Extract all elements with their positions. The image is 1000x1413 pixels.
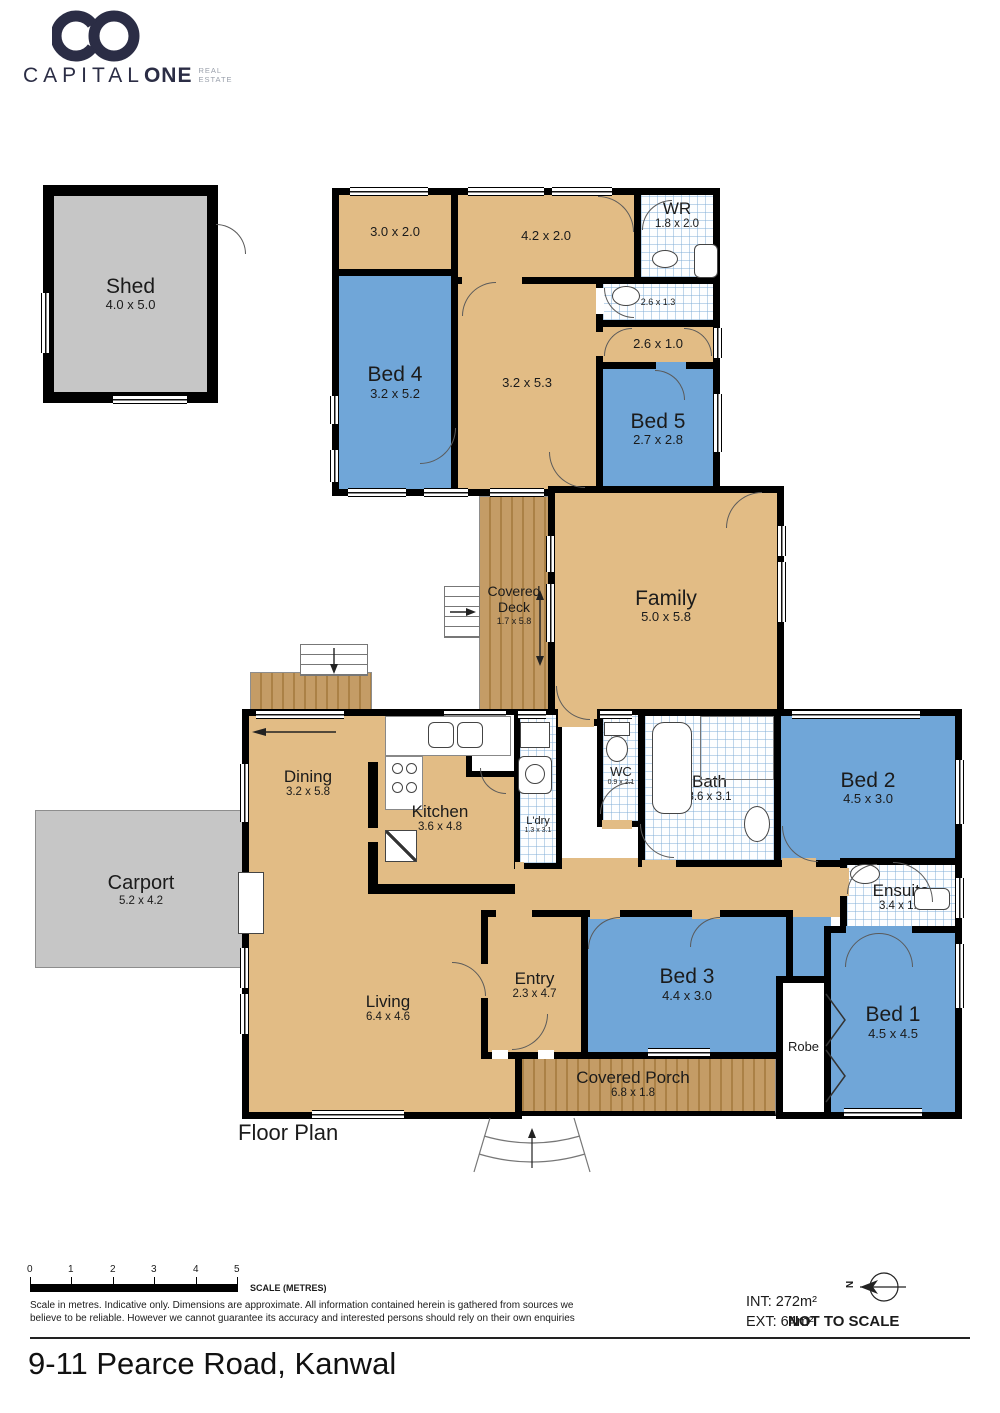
brand-name-one: ONE bbox=[144, 64, 193, 88]
floor-plan-page: CAPITAL ONE REAL ESTATE Shed 4.0 x 5.0 C… bbox=[0, 0, 1000, 1413]
window bbox=[844, 1108, 922, 1117]
wr-basin bbox=[652, 250, 678, 268]
floor-plan-caption: Floor Plan bbox=[238, 1120, 338, 1146]
window bbox=[468, 187, 544, 196]
room-label: Covered Porch bbox=[576, 1068, 689, 1087]
washing-machine-door bbox=[525, 764, 545, 784]
window bbox=[792, 710, 920, 719]
kitchen-sink bbox=[428, 722, 454, 748]
room-label: Bed 1 bbox=[866, 1003, 921, 1027]
page-title: 9-11 Pearce Road, Kanwal bbox=[28, 1346, 396, 1382]
room-carport: Carport 5.2 x 4.2 bbox=[35, 810, 247, 968]
window bbox=[955, 944, 964, 1008]
room-deck-label: Covered Deck 1.7 x 5.8 bbox=[479, 565, 549, 645]
room-kitchen-label: Kitchen 3.6 x 4.8 bbox=[380, 794, 500, 842]
toilet-tank bbox=[604, 722, 630, 736]
room-label: Bed 2 bbox=[841, 769, 896, 793]
doorway-gap bbox=[642, 860, 676, 869]
wr-toilet bbox=[694, 244, 718, 278]
window bbox=[777, 562, 786, 622]
room-dims: 2.6 x 1.0 bbox=[633, 337, 683, 352]
window bbox=[552, 187, 612, 196]
shower bbox=[700, 716, 774, 780]
window bbox=[113, 395, 187, 404]
cooktop-burner bbox=[406, 782, 417, 793]
room-porch-label: Covered Porch 6.8 x 1.8 bbox=[490, 1058, 776, 1110]
entry-fan-steps bbox=[472, 1116, 592, 1174]
doorway-gap bbox=[602, 820, 632, 829]
room-label: Kitchen bbox=[412, 802, 469, 821]
door-arc bbox=[216, 224, 246, 254]
sliding-door-arrow bbox=[250, 726, 340, 738]
window bbox=[348, 488, 406, 497]
room-living-label: Living 6.4 x 4.6 bbox=[328, 984, 448, 1032]
room-label: Carport bbox=[108, 872, 175, 895]
room-dims: 1.3 x 3.1 bbox=[525, 827, 552, 835]
toilet-bowl bbox=[606, 736, 628, 762]
window bbox=[41, 293, 50, 353]
brand-name-capital: CAPITAL bbox=[23, 64, 144, 88]
wall-segment bbox=[368, 884, 520, 894]
window bbox=[713, 328, 722, 358]
scale-tick-label: 0 bbox=[27, 1264, 33, 1275]
window bbox=[350, 187, 428, 196]
room-label: Bed 5 bbox=[631, 410, 686, 434]
room-label: Living bbox=[366, 992, 410, 1011]
scale-bar-label: SCALE (METRES) bbox=[250, 1283, 327, 1293]
window bbox=[240, 994, 249, 1034]
scale-tick-label: 3 bbox=[151, 1264, 157, 1275]
title-divider bbox=[30, 1337, 970, 1339]
room-shed: Shed 4.0 x 5.0 bbox=[43, 185, 218, 403]
room-label: Dining bbox=[284, 767, 332, 786]
scale-tick-label: 1 bbox=[68, 1264, 74, 1275]
room-dims: 3.2 x 5.3 bbox=[502, 376, 552, 391]
internal-area: INT: 272m² bbox=[746, 1292, 817, 1312]
window bbox=[713, 394, 722, 452]
room-label: Shed bbox=[106, 275, 155, 299]
room-dims: 5.0 x 5.8 bbox=[641, 610, 691, 625]
scale-tick-label: 5 bbox=[234, 1264, 240, 1275]
scale-tick bbox=[113, 1277, 114, 1284]
bifold-robe-doors bbox=[824, 992, 848, 1104]
scale-tick-label: 4 bbox=[193, 1264, 199, 1275]
scale-tick bbox=[71, 1277, 72, 1284]
window bbox=[777, 526, 786, 556]
window bbox=[955, 760, 964, 824]
scale-tick bbox=[237, 1277, 238, 1284]
room-dims: 4.4 x 3.0 bbox=[662, 989, 712, 1004]
bathtub bbox=[652, 722, 692, 814]
room-dims: 6.4 x 4.6 bbox=[366, 1011, 410, 1024]
room-label: L'dry bbox=[526, 815, 550, 827]
steps-right-arrow bbox=[450, 606, 476, 618]
room-dims: 4.2 x 2.0 bbox=[521, 229, 571, 244]
room-dims: 3.6 x 3.1 bbox=[687, 791, 731, 804]
room-dims: 4.5 x 4.5 bbox=[868, 1027, 918, 1042]
room-dims: 3.2 x 5.8 bbox=[286, 786, 330, 799]
bath-basin bbox=[744, 806, 770, 842]
room-dims: 6.8 x 1.8 bbox=[611, 1087, 655, 1100]
window bbox=[648, 1048, 710, 1057]
room-dims: 4.0 x 5.0 bbox=[106, 298, 156, 313]
room-dims: 1.7 x 5.8 bbox=[497, 616, 532, 626]
window bbox=[490, 488, 544, 497]
disclaimer-text: Scale in metres. Indicative only. Dimens… bbox=[30, 1299, 575, 1325]
room-robe: Robe bbox=[776, 976, 831, 1119]
room-label: Entry bbox=[515, 969, 555, 988]
window bbox=[256, 710, 344, 719]
room-dims: 2.7 x 2.8 bbox=[633, 433, 683, 448]
room-dining-label: Dining 3.2 x 5.8 bbox=[248, 758, 368, 808]
window bbox=[240, 948, 249, 988]
room-dims: 3.2 x 5.2 bbox=[370, 387, 420, 402]
room-dims: 3.6 x 4.8 bbox=[418, 821, 462, 834]
window bbox=[600, 710, 632, 719]
not-to-scale-label: NOT TO SCALE bbox=[788, 1313, 899, 1330]
window bbox=[312, 1110, 404, 1119]
room-store-a: 3.0 x 2.0 bbox=[332, 188, 458, 276]
stairs-down-arrow bbox=[328, 648, 340, 674]
room-label: WC bbox=[610, 765, 632, 780]
window bbox=[955, 878, 964, 918]
fireplace-niche bbox=[238, 872, 264, 934]
compass-north-label: N bbox=[843, 1281, 854, 1288]
doorway-gap bbox=[515, 862, 524, 914]
doorway-gap bbox=[496, 910, 532, 919]
scale-tick-label: 2 bbox=[110, 1264, 116, 1275]
capital-one-logo-monogram bbox=[52, 8, 148, 66]
wall-segment bbox=[368, 762, 378, 828]
kitchen-sink bbox=[457, 722, 483, 748]
doorway-gap bbox=[596, 332, 604, 356]
cooktop-burner bbox=[392, 763, 403, 774]
room-dims: 4.5 x 3.0 bbox=[843, 792, 893, 807]
scale-bar bbox=[30, 1284, 238, 1292]
laundry-tub bbox=[520, 722, 550, 748]
room-dims: 2.6 x 1.3 bbox=[641, 297, 676, 307]
room-dims: 3.0 x 2.0 bbox=[370, 225, 420, 240]
scale-tick bbox=[154, 1277, 155, 1284]
scale-tick bbox=[30, 1277, 31, 1284]
room-label: Bed 3 bbox=[660, 965, 715, 989]
room-dims: 5.2 x 4.2 bbox=[119, 895, 163, 907]
brand-tagline: REAL ESTATE bbox=[198, 67, 232, 84]
room-label: Family bbox=[635, 587, 697, 611]
compass-icon bbox=[848, 1269, 908, 1305]
capital-one-logo-text: CAPITAL ONE REAL ESTATE bbox=[23, 64, 233, 88]
window bbox=[330, 396, 339, 424]
room-label: Robe bbox=[788, 1040, 819, 1055]
window bbox=[330, 450, 339, 482]
cooktop-burner bbox=[406, 763, 417, 774]
room-bed-4: Bed 4 3.2 x 5.2 bbox=[332, 269, 458, 496]
window bbox=[424, 488, 468, 497]
room-label: Covered Deck bbox=[479, 584, 549, 615]
cooktop-burner bbox=[392, 782, 403, 793]
window bbox=[518, 710, 546, 719]
scale-tick bbox=[196, 1277, 197, 1284]
doorway-gap bbox=[596, 288, 604, 314]
room-label: Bed 4 bbox=[368, 363, 423, 387]
room-dims: 2.3 x 4.7 bbox=[512, 988, 556, 1001]
